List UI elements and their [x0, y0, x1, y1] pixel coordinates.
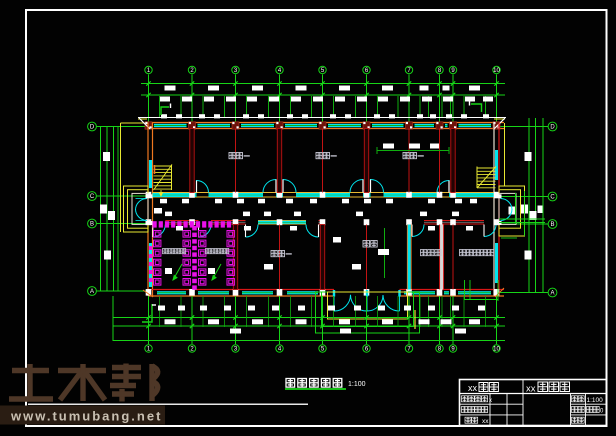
svg-text:D: D — [550, 125, 555, 131]
svg-text:1:100: 1:100 — [587, 397, 604, 404]
svg-text:D: D — [90, 125, 95, 131]
svg-text:C: C — [90, 194, 95, 200]
svg-text:A: A — [90, 289, 94, 295]
svg-text:B: B — [550, 222, 554, 228]
svg-text:xx: xx — [526, 384, 536, 395]
svg-text:x: x — [489, 398, 492, 404]
svg-text:C: C — [550, 195, 555, 201]
svg-text:www.tumubang.net: www.tumubang.net — [10, 409, 162, 424]
svg-text:xx: xx — [468, 383, 478, 393]
svg-text:10: 10 — [493, 347, 500, 353]
svg-text:B: B — [90, 222, 94, 228]
svg-text:10: 10 — [493, 68, 500, 74]
svg-text:1:100: 1:100 — [348, 381, 366, 388]
svg-text:xx: xx — [482, 418, 489, 425]
svg-text:A: A — [550, 291, 554, 297]
